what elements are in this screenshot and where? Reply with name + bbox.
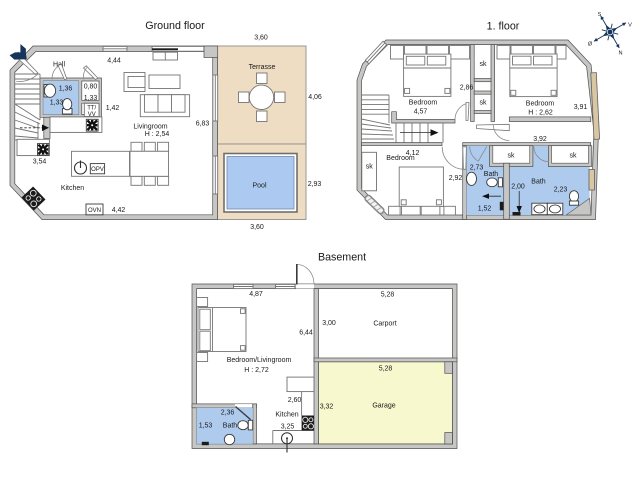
svg-text:Bath: Bath <box>223 423 238 430</box>
svg-text:3,91: 3,91 <box>574 104 588 111</box>
svg-text:2,73: 2,73 <box>470 165 484 172</box>
svg-text:Garage: Garage <box>372 403 395 410</box>
svg-text:Kitchen: Kitchen <box>275 412 298 419</box>
svg-text:Pool: Pool <box>252 183 266 190</box>
svg-text:Bedroom/Livingroom: Bedroom/Livingroom <box>227 357 292 364</box>
svg-text:Bath: Bath <box>531 179 546 186</box>
svg-text:4,87: 4,87 <box>249 291 263 298</box>
svg-text:3,32: 3,32 <box>320 404 334 411</box>
svg-text:Basement: Basement <box>318 252 366 264</box>
svg-text:1,53: 1,53 <box>199 423 213 430</box>
svg-text:1,36: 1,36 <box>59 86 73 93</box>
svg-text:TT/: TT/ <box>87 105 96 111</box>
svg-text:0,80: 0,80 <box>84 84 98 91</box>
svg-text:4,42: 4,42 <box>112 207 126 214</box>
svg-text:V: V <box>628 23 632 29</box>
svg-text:sk: sk <box>480 61 488 68</box>
svg-text:3,54: 3,54 <box>33 159 47 166</box>
svg-text:Livingroom: Livingroom <box>133 124 167 131</box>
svg-text:5,28: 5,28 <box>379 366 393 373</box>
svg-text:2,23: 2,23 <box>554 187 568 194</box>
svg-text:6,44: 6,44 <box>299 330 313 337</box>
svg-text:Terrasse: Terrasse <box>249 64 276 71</box>
svg-text:1,33: 1,33 <box>84 95 98 102</box>
svg-text:3,00: 3,00 <box>322 320 336 327</box>
svg-text:sk: sk <box>570 153 578 160</box>
svg-text:3,60: 3,60 <box>250 224 264 231</box>
svg-text:Carport: Carport <box>373 321 396 328</box>
svg-text:H : 2,54: H : 2,54 <box>145 131 170 138</box>
svg-text:3,60: 3,60 <box>254 35 268 42</box>
svg-text:2,92: 2,92 <box>449 175 463 182</box>
svg-text:2,60: 2,60 <box>288 397 302 404</box>
svg-text:4,57: 4,57 <box>414 109 428 116</box>
svg-text:Bedroom: Bedroom <box>409 100 438 107</box>
svg-text:Ø: Ø <box>588 42 593 48</box>
svg-text:N: N <box>618 51 622 57</box>
svg-text:2,86: 2,86 <box>460 85 474 92</box>
svg-text:S: S <box>598 12 602 18</box>
svg-text:5,28: 5,28 <box>381 292 395 299</box>
svg-text:3,92: 3,92 <box>533 136 547 143</box>
svg-text:sk: sk <box>366 164 374 171</box>
svg-text:2,36: 2,36 <box>221 410 235 417</box>
svg-text:H : 2,62: H : 2,62 <box>528 110 553 117</box>
svg-text:Bath: Bath <box>484 171 499 178</box>
svg-text:2,93: 2,93 <box>308 181 322 188</box>
svg-text:OPV: OPV <box>91 167 104 173</box>
svg-text:4,06: 4,06 <box>308 94 322 101</box>
svg-text:sk: sk <box>508 153 516 160</box>
svg-text:H : 2,72: H : 2,72 <box>244 367 269 374</box>
svg-text:Ground floor: Ground floor <box>145 20 205 32</box>
svg-text:1,52: 1,52 <box>478 206 492 213</box>
svg-text:1,33: 1,33 <box>50 100 64 107</box>
svg-text:6,83: 6,83 <box>196 121 210 128</box>
svg-text:sk: sk <box>480 100 488 107</box>
svg-text:OVN: OVN <box>88 208 101 214</box>
svg-text:Bedroom: Bedroom <box>386 155 415 162</box>
svg-text:Bedroom: Bedroom <box>526 101 555 108</box>
svg-text:1. floor: 1. floor <box>487 21 520 33</box>
svg-text:Kitchen: Kitchen <box>61 185 84 192</box>
svg-text:2,00: 2,00 <box>511 184 525 191</box>
svg-text:1,42: 1,42 <box>106 105 120 112</box>
svg-text:3,25: 3,25 <box>281 424 295 431</box>
svg-text:4,44: 4,44 <box>107 58 121 65</box>
